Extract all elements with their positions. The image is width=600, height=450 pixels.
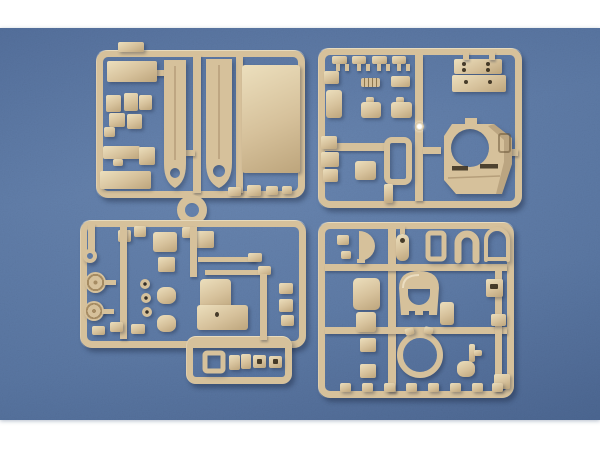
blue-fabric-backdrop (0, 28, 600, 420)
photo-vignette (0, 28, 600, 420)
photo-canvas (0, 0, 600, 450)
